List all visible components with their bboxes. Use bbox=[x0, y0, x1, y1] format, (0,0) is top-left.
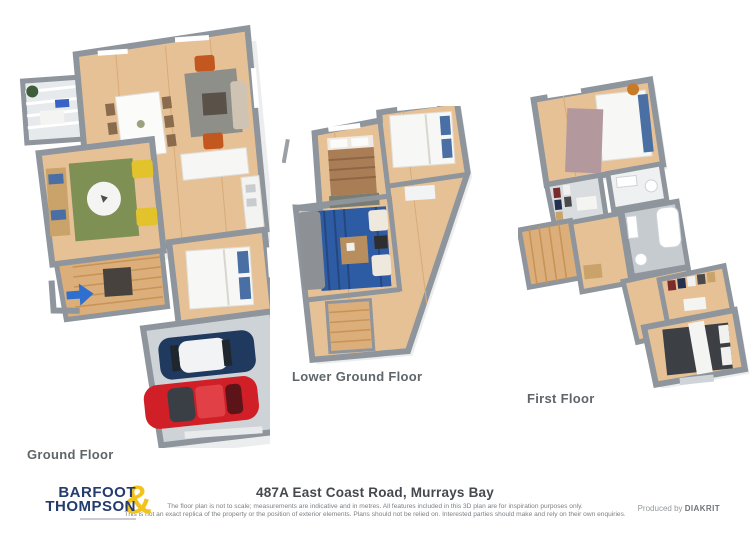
coffee-table bbox=[202, 92, 227, 116]
lounge bbox=[38, 139, 164, 265]
lower-ground-floor-plan bbox=[282, 106, 500, 368]
dresser bbox=[683, 297, 706, 311]
floor-plan-sheet: Ground Floor bbox=[0, 0, 750, 547]
vanity bbox=[626, 216, 638, 239]
producer-brand: DIAKRIT bbox=[685, 504, 720, 513]
bed-brown bbox=[328, 147, 377, 196]
armchair-orange bbox=[203, 132, 224, 149]
produced-by: Produced by DIAKRIT bbox=[638, 504, 720, 513]
logo-tagline bbox=[80, 518, 136, 520]
rug-mauve bbox=[565, 108, 603, 173]
sofa-beige bbox=[230, 81, 249, 130]
logo-line2: THOMPSON bbox=[45, 500, 136, 514]
armchair bbox=[368, 209, 388, 231]
armchair-yellow bbox=[131, 159, 153, 178]
bathroom bbox=[621, 201, 688, 277]
bathtub bbox=[656, 206, 682, 248]
ground-floor-plan bbox=[18, 6, 270, 448]
pole bbox=[282, 139, 290, 163]
deck bbox=[23, 77, 85, 143]
armchair-orange bbox=[194, 55, 215, 72]
side-table bbox=[374, 235, 388, 249]
first-floor-plan bbox=[518, 76, 750, 388]
garage bbox=[138, 311, 270, 446]
closet bbox=[405, 185, 436, 201]
armchair-yellow bbox=[136, 207, 158, 226]
barfoot-thompson-logo: & BARFOOT THOMPSON bbox=[34, 484, 152, 532]
desk bbox=[583, 264, 602, 280]
armchair bbox=[371, 254, 391, 276]
produced-by-label: Produced by bbox=[638, 504, 683, 513]
floor-label-lower-ground: Lower Ground Floor bbox=[292, 369, 422, 384]
dresser bbox=[576, 196, 597, 211]
floor-label-ground: Ground Floor bbox=[27, 447, 114, 462]
floor-label-first: First Floor bbox=[527, 391, 595, 406]
